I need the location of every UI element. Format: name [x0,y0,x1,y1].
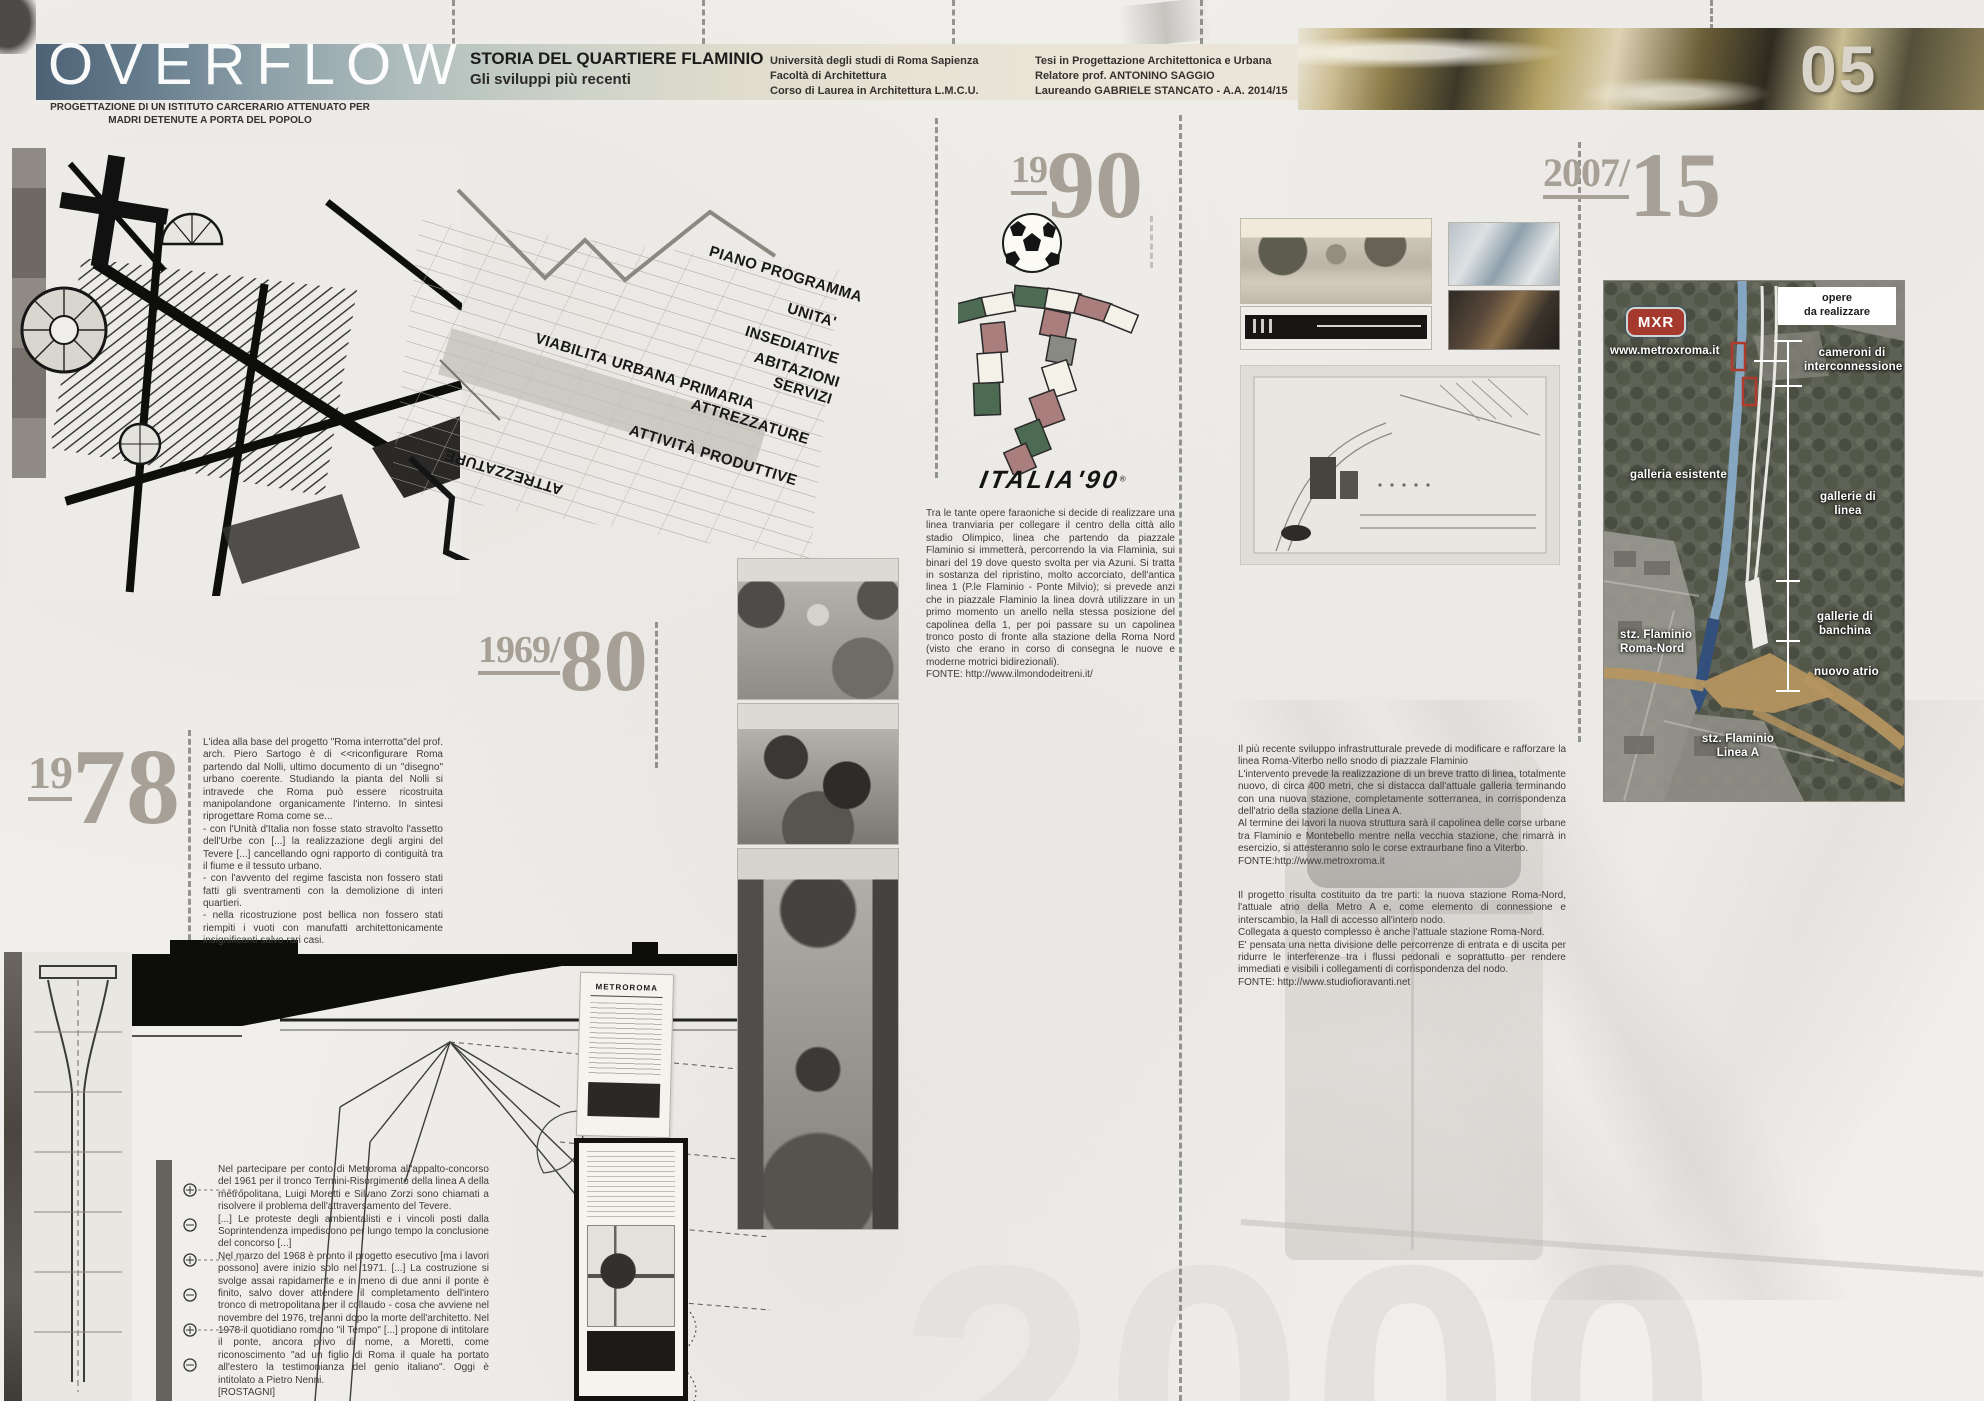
text-1969-80: Nel partecipare per conto di Metroroma a… [218,1164,489,1399]
year-1978: 1978 [28,746,180,830]
metroroma-doc-rule [591,995,663,998]
text-2007-project: Il progetto risulta costituito da tre pa… [1238,890,1566,989]
poster-subtitle: PROGETTAZIONE DI UN ISTITUTO CARCERARIO … [40,101,380,127]
year-1990-number: 90 [1047,148,1143,223]
render-interior-dark [1448,290,1560,350]
text-2007-infrastructure: Il più recente sviluppo infrastrutturale… [1238,744,1566,868]
photo-porta-popolo-works [737,703,899,845]
divider-dash-5 [1710,0,1713,30]
timeline-dash-1969 [655,622,658,768]
year-1969-80: 1969/80 [478,628,648,697]
text-1978: L'idea alla base del progetto "Roma inte… [203,737,443,948]
thesis-info: Tesi in Progettazione Architettonica e U… [1035,54,1288,99]
timeline-dash-2007 [1578,142,1581,742]
map-label-nuovo-atrio: nuovo atrio [1814,666,1879,680]
italia90-logo-text: ITALIA'90 [978,466,1123,495]
siteplan-dark-strip [587,1331,675,1371]
year-1978-number: 78 [72,746,180,830]
page-number: 05 [1800,36,1877,102]
divider-dash-4 [1200,0,1203,44]
metroroma-doc-block [587,1082,660,1118]
map-label-cameroni: cameroni di interconnessione [1804,347,1900,374]
plan-flaminio-node [1240,365,1560,565]
siteplan-document [574,1138,688,1401]
metroroma-document: METROROMA [576,972,674,1138]
year-1969-number: 80 [560,628,648,697]
map-label-gallerie-banchina: gallerie di banchina [1800,611,1890,638]
timeline-dash-90-small [1150,216,1153,268]
map-legend-box: opere da realizzare [1778,287,1896,325]
poster-board: 2000 05 OVERFLOW PROGETTAZIONE DI UN IST… [0,0,1984,1401]
train-section-glyph [1253,319,1311,333]
mxr-logo: MXR [1626,307,1686,337]
divider-dash-2 [702,0,705,44]
satellite-map: MXR www.metroxroma.it opere da realizzar… [1603,280,1905,802]
year-2007-15: 2007/15 [1543,150,1721,222]
photo-flaminio-station [1240,218,1432,304]
year-1990: 1990 [1011,148,1143,223]
map-label-stz-linea-a: stz. Flaminio Linea A [1690,733,1786,760]
university-info: Università degli studi di Roma Sapienza … [770,54,979,99]
photo-via-flaminia-tram [737,848,899,1230]
text-1990: Tra le tante opere faraoniche si decide … [926,508,1175,681]
year-1969-prefix: 1969/ [478,633,560,675]
mxr-logo-text: MXR [1638,314,1674,331]
photo-flaminio-aerial [737,558,899,700]
pier-drawing-sheet [4,952,132,1401]
year-2007-prefix: 2007/ [1543,155,1629,199]
metroroma-doc-textlines [588,1002,662,1078]
map-label-galleria-esistente: galleria esistente [1630,469,1727,483]
drawing-train-section [1240,306,1432,350]
header-streak [1118,0,1212,49]
poster-title: OVERFLOW [48,36,468,94]
italia90-logo: ITALIA'90® [958,466,1148,495]
header-grunge-texture [1298,28,1984,110]
metroroma-doc-title: METROROMA [581,983,673,993]
section-title: STORIA DEL QUARTIERE FLAMINIO [470,50,763,67]
map-label-stz-roma-nord: stz. Flaminio Roma-Nord [1620,629,1716,656]
year-1978-prefix: 19 [28,752,72,801]
map-label-gallerie-linea: gallerie di linea [1806,491,1890,518]
divider-dash-3 [952,0,955,44]
train-section-line [1317,325,1421,327]
section-subtitle: Gli sviluppi più recenti [470,72,631,87]
map-url: www.metroxroma.it [1610,345,1720,359]
render-interior-light [1448,222,1560,286]
corner-grunge [0,0,36,54]
timeline-dash-1978 [188,730,191,958]
siteplan-plan-figure [587,1225,675,1327]
year-1990-prefix: 19 [1011,153,1047,195]
italia90-logo-reg: ® [1120,475,1126,484]
timeline-dash-1990 [935,118,938,478]
siteplan-textlines [587,1151,675,1221]
timeline-dash-main [1179,115,1182,1401]
year-2007-number: 15 [1629,150,1721,222]
